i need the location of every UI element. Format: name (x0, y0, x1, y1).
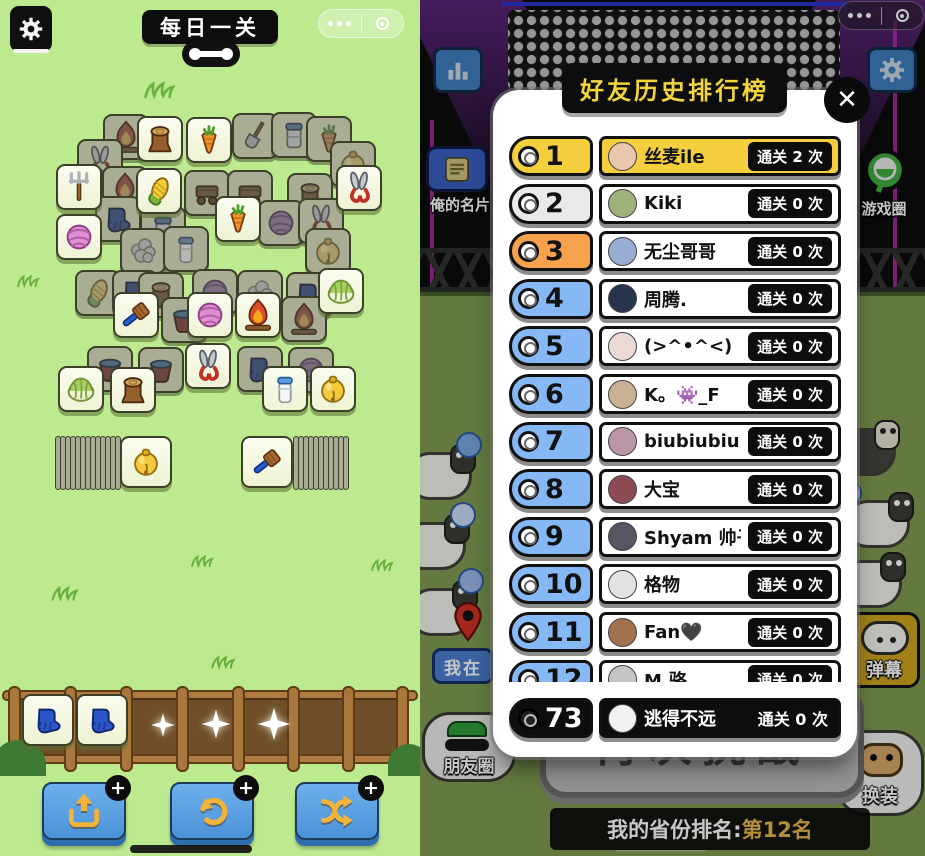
province-rank-bar: 我的省份排名:第12名 (550, 808, 870, 850)
my-rank-number: 73 (545, 705, 583, 732)
leaderboard-row: 1丝麦ile通关 2 次 (497, 136, 853, 176)
scissors-icon (340, 169, 378, 207)
tile-corn[interactable] (136, 168, 182, 214)
card-icon (440, 152, 474, 186)
tile-fire[interactable] (235, 292, 281, 338)
game-circle-icon (858, 146, 912, 200)
game-panel: 每日一关 +++ (0, 0, 420, 856)
clear-count-badge: 通关 0 次 (748, 380, 832, 409)
close-icon: ✕ (836, 85, 858, 115)
rank-pill: 11 (509, 612, 593, 652)
tile-carrot[interactable] (215, 196, 261, 242)
bone-decoration (182, 41, 240, 67)
exit-target-icon[interactable] (362, 17, 404, 30)
stack-card (343, 436, 349, 490)
clear-count-badge: 通关 0 次 (748, 618, 832, 647)
medal-icon (518, 193, 539, 214)
leaderboard-row: 6K。👾_F通关 0 次 (497, 374, 853, 414)
medal-icon (518, 526, 539, 547)
settings-button[interactable] (10, 6, 52, 52)
sunglasses-icon (445, 739, 489, 751)
game-circle-label: 游戏圈 (848, 198, 920, 219)
sparkle-icon (200, 708, 232, 740)
avatar (608, 427, 637, 456)
tile-glove[interactable] (22, 694, 74, 746)
moments-label: 朋友圈 (424, 752, 514, 777)
rank-pill: 4 (509, 279, 593, 319)
milk-icon (167, 230, 205, 268)
level-title: 每日一关 (142, 10, 278, 44)
my-card-label: 俺的名片 (420, 194, 500, 215)
my-rank-pill: 73 (509, 698, 593, 738)
tile-fork[interactable] (56, 164, 102, 210)
screen: 每日一关 +++ (0, 0, 925, 856)
tile-milk (163, 226, 209, 272)
rank-pill: 7 (509, 422, 593, 462)
medal-icon (518, 479, 539, 500)
yarn_pink-icon (60, 218, 98, 256)
grass-tuft (48, 578, 86, 604)
tile-milk[interactable] (262, 366, 308, 412)
player-name: 周腾. (644, 286, 741, 312)
leaderboard-row: 8大宝通关 0 次 (497, 469, 853, 509)
clear-count-badge: 通关 0 次 (748, 427, 832, 456)
grass-tuft (188, 548, 220, 570)
plus-badge: + (358, 775, 384, 801)
grass-tuft (368, 552, 400, 574)
tile-bell[interactable] (120, 436, 172, 488)
sheep (844, 500, 910, 548)
rank-number: 6 (545, 381, 564, 408)
brush-icon (117, 296, 155, 334)
leaderboard-panel: 俺的名片 游戏圈 我在 朋友圈 弹幕 换装 再次挑战 我的省份排名:第12名 (420, 0, 925, 856)
fork-icon (60, 168, 98, 206)
avatar (608, 618, 637, 647)
medal-icon (518, 431, 539, 452)
medal-icon (518, 669, 539, 682)
avatar (608, 189, 637, 218)
rank-number: 9 (545, 523, 564, 550)
player-name: M.骆 (644, 667, 741, 682)
rank-number: 7 (545, 428, 564, 455)
player-bar: 大宝通关 0 次 (599, 469, 841, 509)
my-clear-count: 通关 0 次 (758, 706, 832, 730)
leaderboard-row: 7biubiubiu 👑通关 0 次 (497, 422, 853, 462)
wechat-capsule[interactable] (838, 1, 924, 30)
undo-button[interactable]: + (170, 782, 254, 840)
medal-icon (518, 146, 539, 167)
undo-icon (191, 790, 233, 832)
avatar (608, 237, 637, 266)
stump-icon (114, 371, 152, 409)
tile-stump[interactable] (110, 367, 156, 413)
tile-cabbage[interactable] (318, 268, 364, 314)
settings-button-right[interactable] (867, 47, 917, 93)
close-button[interactable]: ✕ (824, 77, 870, 123)
exit-target-icon[interactable] (882, 9, 924, 22)
player-bar: Kiki通关 0 次 (599, 184, 841, 224)
grass-tuft (14, 268, 46, 290)
my-location-button[interactable]: 我在 (432, 648, 494, 684)
player-name: 无尘哥哥 (644, 238, 741, 264)
bell-icon (127, 443, 165, 481)
fire-icon (239, 296, 277, 334)
province-rank-value: 第12名 (742, 814, 813, 844)
plus-badge: + (105, 775, 131, 801)
carrot-icon (190, 121, 228, 159)
player-bar: Shyam 帅子🌱通关 0 次 (599, 517, 841, 557)
clear-count-badge: 通关 0 次 (748, 522, 832, 551)
game-circle-button[interactable] (858, 146, 912, 200)
tray-post (342, 686, 355, 772)
milk-icon (266, 370, 304, 408)
corn-icon (140, 172, 178, 210)
shuffle-button[interactable]: + (295, 782, 379, 840)
speech-bubble-icon (861, 621, 909, 655)
danmaku-label: 弹幕 (848, 656, 920, 682)
bell-icon (314, 370, 352, 408)
bell-icon (309, 232, 347, 270)
sheep (420, 452, 472, 500)
tile-glove[interactable] (76, 694, 128, 746)
chart-icon (442, 54, 474, 86)
player-name: Kiki (644, 193, 741, 214)
leaderboard-row: 12M.骆通关 0 次 (497, 660, 853, 682)
move-out-button[interactable]: + (42, 782, 126, 840)
cabbage-icon (62, 370, 100, 408)
tile-scissors[interactable] (336, 165, 382, 211)
gear-icon (876, 54, 908, 86)
cabbage-icon (322, 272, 360, 310)
tile-bell[interactable] (310, 366, 356, 412)
rank-number: 11 (545, 619, 583, 646)
tile-scissors[interactable] (185, 343, 231, 389)
settings-underline (13, 49, 49, 53)
clear-count-badge: 通关 0 次 (748, 332, 832, 361)
more-icon[interactable] (839, 13, 881, 18)
player-name: biubiubiu 👑 (644, 431, 741, 452)
left-tile-stack[interactable] (55, 436, 172, 490)
clear-count-badge: 通关 0 次 (748, 570, 832, 599)
rank-number: 12 (545, 666, 583, 682)
player-bar: (>^•^<)通关 0 次 (599, 326, 841, 366)
medal-icon (518, 336, 539, 357)
clear-count-badge: 通关 0 次 (748, 237, 832, 266)
avatar (608, 380, 637, 409)
player-bar: Fan🖤通关 0 次 (599, 612, 841, 652)
right-tile-stack[interactable] (241, 436, 348, 490)
player-name: 格物 (644, 571, 741, 597)
player-name: K。👾_F (644, 381, 741, 407)
tile-puff (120, 228, 166, 274)
puff-icon (124, 232, 162, 270)
shuffle-icon (316, 790, 358, 832)
my-rank-row: 73 逃得不远 通关 0 次 (497, 698, 853, 738)
rank-chart-button[interactable] (433, 47, 483, 93)
province-rank-prefix: 我的省份排名: (607, 814, 741, 844)
clear-count-badge: 通关 0 次 (748, 475, 832, 504)
rank-pill: 9 (509, 517, 593, 557)
player-bar: 丝麦ile通关 2 次 (599, 136, 841, 176)
stump-icon (141, 120, 179, 158)
medal-icon (518, 708, 539, 729)
player-bar: 周腾.通关 0 次 (599, 279, 841, 319)
rank-number: 1 (545, 143, 564, 170)
leaderboard-title: 好友历史排行榜 (562, 63, 787, 113)
brush-icon (248, 443, 286, 481)
scissors-icon (189, 347, 227, 385)
more-icon[interactable] (319, 21, 361, 26)
player-bar: K。👾_F通关 0 次 (599, 374, 841, 414)
leaderboard-modal: 1丝麦ile通关 2 次2Kiki通关 0 次3无尘哥哥通关 0 次4周腾.通关… (497, 94, 853, 753)
rank-pill: 2 (509, 184, 593, 224)
tray-post (232, 686, 245, 772)
rank-pill: 3 (509, 231, 593, 271)
medal-icon (518, 622, 539, 643)
avatar (608, 522, 637, 551)
glove-icon (29, 701, 67, 739)
yarn_purple-icon (262, 204, 300, 242)
gear-icon (16, 14, 46, 44)
rank-number: 8 (545, 476, 564, 503)
leaderboard-list: 1丝麦ile通关 2 次2Kiki通关 0 次3无尘哥哥通关 0 次4周腾.通关… (497, 136, 853, 682)
grass-tuft (140, 72, 184, 102)
tile-carrot[interactable] (186, 117, 232, 163)
leaderboard-row: 3无尘哥哥通关 0 次 (497, 231, 853, 271)
rank-pill: 5 (509, 326, 593, 366)
medal-icon (518, 241, 539, 262)
leaderboard-row: 11Fan🖤通关 0 次 (497, 612, 853, 652)
sheep (420, 522, 466, 570)
my-player-bar: 逃得不远 通关 0 次 (599, 698, 841, 738)
tile-cabbage[interactable] (58, 366, 104, 412)
tile-brush[interactable] (241, 436, 293, 488)
glove-icon (83, 701, 121, 739)
rank-pill: 12 (509, 660, 593, 682)
clear-count-badge: 通关 2 次 (748, 142, 832, 171)
my-player-name: 逃得不远 (644, 705, 751, 731)
leaderboard-row: 10格物通关 0 次 (497, 564, 853, 604)
carrot-icon (219, 200, 257, 238)
player-name: (>^•^<) (644, 336, 741, 357)
wechat-capsule[interactable] (318, 9, 404, 38)
plus-badge: + (233, 775, 259, 801)
sheep-face-icon (859, 743, 903, 777)
player-bar: M.骆通关 0 次 (599, 660, 841, 682)
watermark-bar (130, 845, 252, 853)
medal-icon (518, 384, 539, 405)
rank-pill: 6 (509, 374, 593, 414)
leaderboard-row: 5(>^•^<)通关 0 次 (497, 326, 853, 366)
rank-number: 2 (545, 190, 564, 217)
leaderboard-row: 4周腾.通关 0 次 (497, 279, 853, 319)
tile-yarn_pink[interactable] (187, 292, 233, 338)
clear-count-badge: 通关 0 次 (748, 189, 832, 218)
clear-count-badge: 通关 0 次 (748, 284, 832, 313)
player-bar: 无尘哥哥通关 0 次 (599, 231, 841, 271)
rank-pill: 1 (509, 136, 593, 176)
avatar (608, 332, 637, 361)
avatar (608, 704, 637, 733)
medal-icon (518, 288, 539, 309)
rank-number: 3 (545, 238, 564, 265)
avatar (608, 570, 637, 599)
stage-blue-line (502, 2, 847, 6)
tile-brush[interactable] (113, 292, 159, 338)
my-card-button[interactable] (426, 146, 488, 192)
player-bar: biubiubiu 👑通关 0 次 (599, 422, 841, 462)
trayout-icon (63, 790, 105, 832)
leaderboard-row: 2Kiki通关 0 次 (497, 184, 853, 224)
sparkle-icon (256, 706, 292, 742)
leaderboard-row: 9Shyam 帅子🌱通关 0 次 (497, 517, 853, 557)
tray-post (176, 686, 189, 772)
rank-number: 4 (545, 285, 564, 312)
player-name: 丝麦ile (644, 143, 741, 169)
player-bar: 格物通关 0 次 (599, 564, 841, 604)
rank-number: 10 (545, 571, 583, 598)
sparkle-icon (150, 712, 176, 738)
tile-yarn_pink[interactable] (56, 214, 102, 260)
avatar (608, 284, 637, 313)
location-pin-icon (450, 600, 486, 644)
cap-icon (447, 721, 487, 737)
tile-stump[interactable] (137, 116, 183, 162)
clear-count-badge: 通关 0 次 (748, 665, 832, 682)
medal-icon (518, 574, 539, 595)
rank-pill: 8 (509, 469, 593, 509)
avatar (608, 475, 637, 504)
player-name: 大宝 (644, 476, 741, 502)
rank-pill: 10 (509, 564, 593, 604)
yarn_pink-icon (191, 296, 229, 334)
avatar (608, 142, 637, 171)
avatar (608, 665, 637, 682)
shovel-icon (236, 117, 274, 155)
player-name: Fan🖤 (644, 622, 741, 643)
grass-tuft (208, 648, 242, 672)
player-name: Shyam 帅子🌱 (644, 524, 741, 550)
rank-number: 5 (545, 333, 564, 360)
